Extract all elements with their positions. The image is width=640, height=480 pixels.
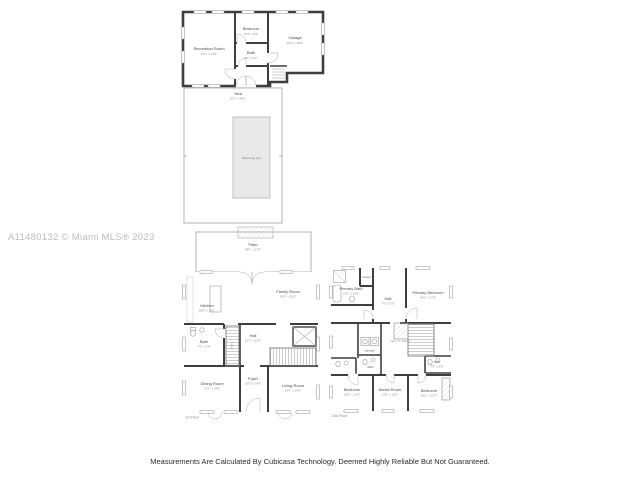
- floor2-closet-strip: [442, 378, 450, 400]
- room-dims-garage: 20'6" x 20'0": [287, 41, 303, 45]
- room-label-bath-center: Bath: [368, 365, 374, 369]
- yard-plan: Yard 32'0" x 45'0" Swimming pool: [180, 86, 286, 236]
- room-dims-f1bath: 7'0" x 5'6": [197, 345, 210, 349]
- room-dims-family: 24'6" x 15'6": [280, 295, 296, 299]
- room-dims-bedroom-left: 13'6" x 12'0": [344, 393, 360, 397]
- room-label-recreation: Recreation Room: [193, 46, 225, 51]
- room-label-laundry: Laundry: [364, 349, 375, 353]
- cubicasa-disclaimer: Measurements Are Calculated By Cubicasa …: [0, 457, 640, 466]
- room-dims-f2hall: 7'6" x 5'0": [381, 302, 394, 306]
- room-label-foyer: Foyer: [248, 376, 259, 381]
- patio-label: Patio: [248, 242, 258, 247]
- yard-dims: 32'0" x 45'0": [230, 97, 246, 101]
- open-to-below-label: Open To Below: [390, 339, 410, 343]
- room-label-dining: Dining Room: [200, 381, 224, 386]
- room-label-bedroom-left: Bedroom: [344, 387, 361, 392]
- room-label-gh-bedroom: Bedroom: [243, 26, 260, 31]
- room-label-living: Living Room: [282, 383, 305, 388]
- pool-label: Swimming pool: [242, 156, 262, 160]
- kitchen-counter: [187, 277, 193, 322]
- floor2-plan: Primary Bath 13'0" x 10'6" Closet Hall 7…: [328, 264, 456, 421]
- patio-dims: 38'0" x 12'6": [245, 248, 261, 252]
- room-dims-gh-bedroom: 10'6" x 9'6": [244, 32, 259, 36]
- room-label-kitchen: Kitchen: [200, 303, 213, 308]
- room-dims-primary-bath: 13'0" x 10'6": [343, 292, 359, 296]
- floor2-tag: 2nd Floor: [332, 414, 348, 418]
- room-label-f1bath: Bath: [200, 339, 208, 344]
- room-label-stairs: Stairs: [230, 342, 234, 350]
- floor1-tag: 1st Floor: [185, 416, 200, 420]
- room-label-garage: Garage: [288, 35, 302, 40]
- room-label-closet: Closet: [362, 275, 370, 279]
- patio-step: [238, 227, 273, 238]
- room-dims-gh-bath: 6'0" x 5'0": [244, 56, 257, 60]
- room-dims-hall: 10'0" x 12'0": [245, 339, 261, 343]
- room-label-primary-bedroom: Primary Bedroom: [412, 290, 444, 295]
- room-dims-recreation: 15'0" x 21'6": [201, 52, 217, 56]
- floor1-closet-x: [293, 327, 316, 346]
- room-dims-dining: 17'6" x 14'0": [204, 387, 220, 391]
- room-label-family: Family Room: [276, 289, 300, 294]
- floorplan-page: A11480132 © Miami MLS® 2023: [0, 0, 640, 480]
- room-dims-primary-bedroom: 14'6" x 17'0": [420, 296, 436, 300]
- floor1-stairs-lower: [270, 348, 316, 366]
- room-dims-bath-right: 7'6" x 5'0": [430, 365, 443, 369]
- room-label-bedroom-right: Bedroom: [421, 388, 438, 393]
- room-label-hall: Hall: [250, 333, 257, 338]
- guest-house-plan: Recreation Room 15'0" x 21'6" Bedroom 10…: [180, 9, 326, 88]
- room-dims-kitchen: 18'6" x 13'0": [199, 309, 215, 313]
- room-label-media-room: Media Room: [379, 387, 402, 392]
- room-label-primary-bath: Primary Bath: [339, 286, 362, 291]
- room-dims-foyer: 10'0" x 14'0": [245, 382, 261, 386]
- room-dims-living: 15'0" x 14'0": [285, 389, 301, 393]
- room-dims-media-room: 11'6" x 12'0": [382, 393, 398, 397]
- room-label-bath-right: Bath: [434, 360, 440, 364]
- yard-label: Yard: [234, 91, 242, 96]
- room-label-gh-bath: Bath: [247, 50, 255, 55]
- utility-steps-icon: [272, 69, 285, 78]
- floor1-plan: Patio 38'0" x 12'6": [180, 225, 326, 420]
- room-label-f2hall: Hall: [385, 296, 392, 301]
- room-dims-bedroom-right: 14'0" x 12'0": [421, 394, 437, 398]
- mls-watermark: A11480132 © Miami MLS® 2023: [8, 232, 155, 243]
